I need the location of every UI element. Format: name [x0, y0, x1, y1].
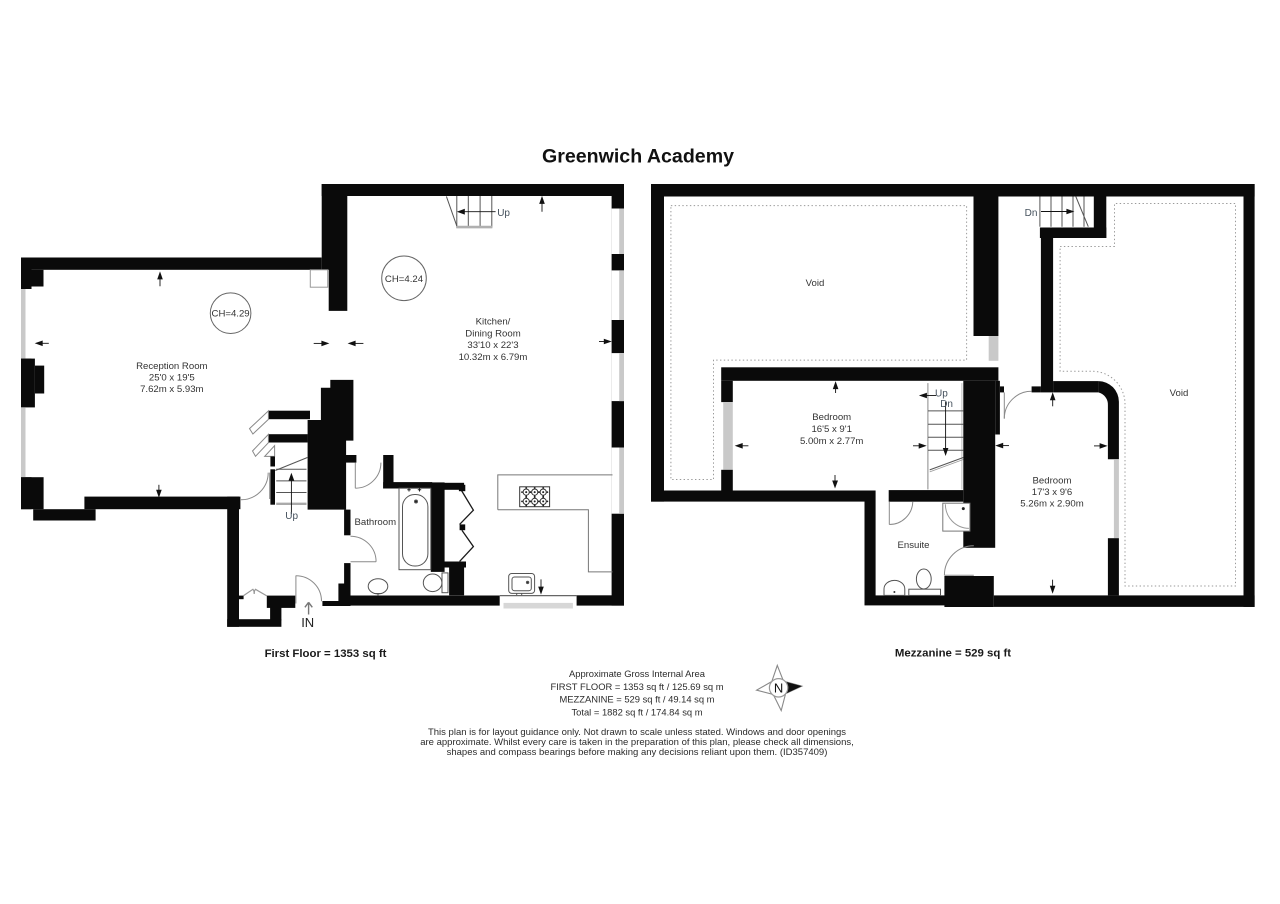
- svg-text:Mezzanine = 529 sq ft: Mezzanine = 529 sq ft: [895, 648, 1011, 660]
- svg-text:Void: Void: [1170, 388, 1189, 399]
- svg-text:Bedroom: Bedroom: [812, 412, 851, 423]
- svg-text:Up: Up: [285, 511, 298, 522]
- svg-text:First Floor = 1353 sq ft: First Floor = 1353 sq ft: [265, 648, 387, 660]
- svg-text:shapes and compass bearings be: shapes and compass bearings before makin…: [447, 747, 828, 758]
- svg-text:N: N: [774, 681, 783, 696]
- svg-text:Reception Room: Reception Room: [136, 361, 207, 372]
- svg-text:Up: Up: [497, 208, 510, 219]
- svg-text:Kitchen/: Kitchen/: [476, 316, 511, 327]
- svg-text:CH=4.24: CH=4.24: [385, 274, 424, 285]
- svg-text:Bedroom: Bedroom: [1033, 475, 1072, 486]
- svg-text:7.62m x 5.93m: 7.62m x 5.93m: [140, 384, 203, 395]
- svg-text:25'0 x 19'5: 25'0 x 19'5: [149, 373, 195, 384]
- svg-text:5.26m x 2.90m: 5.26m x 2.90m: [1020, 498, 1083, 509]
- svg-text:Dn: Dn: [940, 399, 953, 410]
- svg-text:CH=4.29: CH=4.29: [212, 309, 250, 320]
- svg-text:33'10 x 22'3: 33'10 x 22'3: [467, 340, 518, 351]
- svg-text:Approximate Gross Internal Are: Approximate Gross Internal Area: [569, 668, 706, 679]
- svg-text:IN: IN: [301, 615, 314, 630]
- svg-text:Bathroom: Bathroom: [355, 517, 397, 528]
- svg-text:Void: Void: [806, 278, 825, 289]
- svg-text:Total = 1882 sq ft / 174.84 sq: Total = 1882 sq ft / 174.84 sq m: [571, 706, 702, 717]
- svg-text:Dn: Dn: [1025, 208, 1038, 219]
- svg-text:5.00m x 2.77m: 5.00m x 2.77m: [800, 436, 863, 447]
- svg-text:17'3 x 9'6: 17'3 x 9'6: [1032, 487, 1072, 498]
- svg-text:Ensuite: Ensuite: [898, 540, 930, 551]
- svg-text:10.32m x 6.79m: 10.32m x 6.79m: [459, 352, 528, 363]
- svg-text:16'5 x 9'1: 16'5 x 9'1: [811, 424, 851, 435]
- svg-text:FIRST FLOOR = 1353 sq ft / 125: FIRST FLOOR = 1353 sq ft / 125.69 sq m: [550, 681, 723, 692]
- svg-text:Dining Room: Dining Room: [465, 328, 520, 339]
- svg-text:MEZZANINE = 529 sq ft / 49.14: MEZZANINE = 529 sq ft / 49.14 sq m: [559, 694, 714, 705]
- svg-text:Greenwich Academy: Greenwich Academy: [542, 146, 734, 168]
